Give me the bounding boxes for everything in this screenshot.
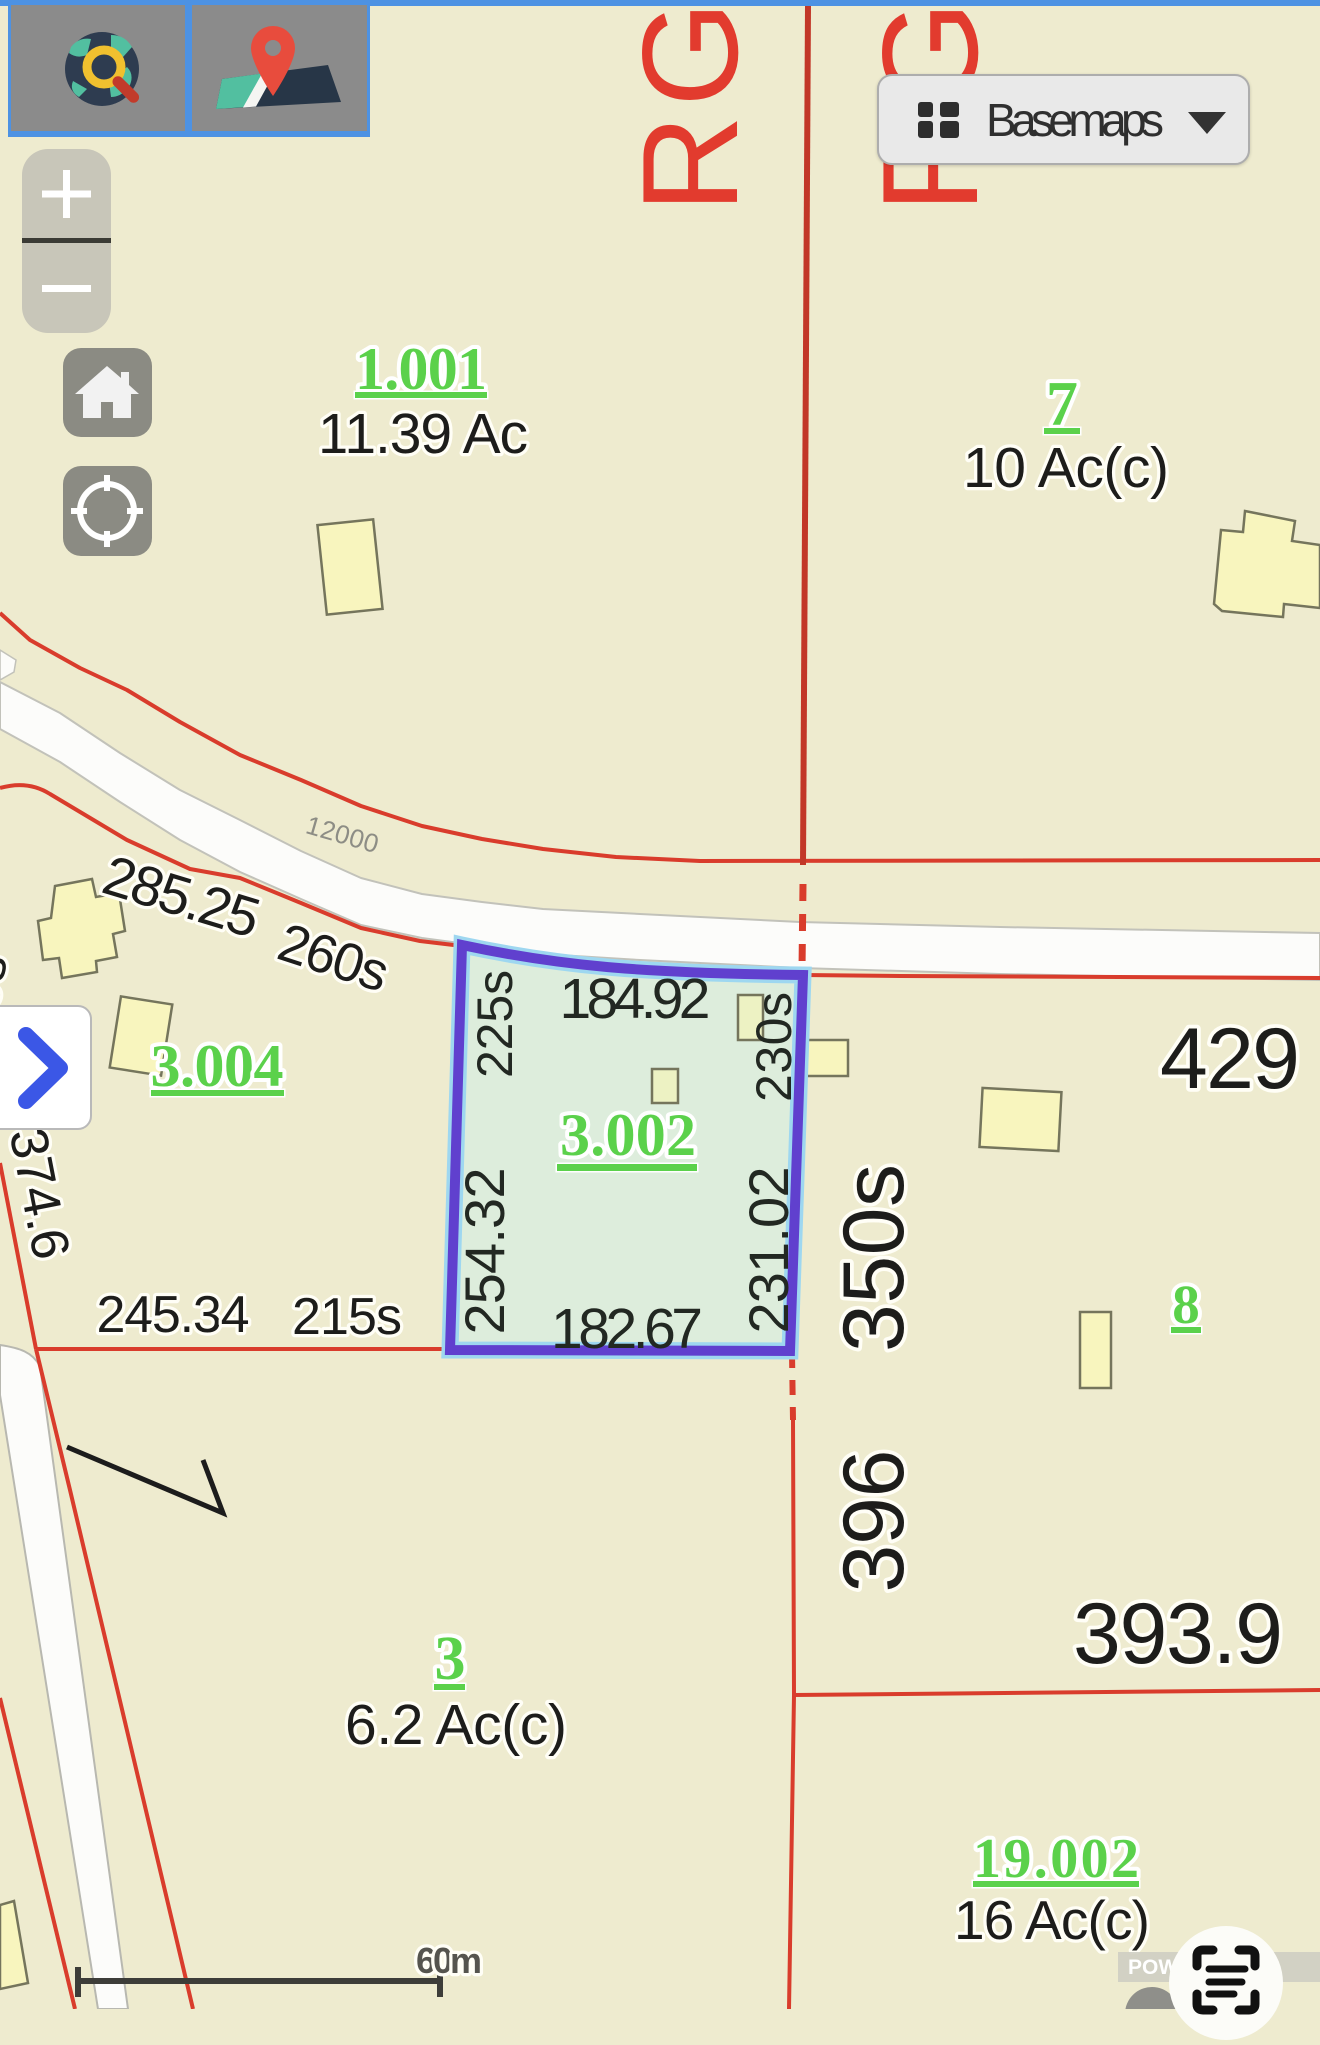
svg-text:230s: 230s bbox=[746, 992, 802, 1102]
svg-text:60m: 60m bbox=[416, 1940, 482, 1981]
svg-text:396: 396 bbox=[826, 1450, 922, 1593]
svg-text:11.39 Ac: 11.39 Ac bbox=[318, 402, 528, 466]
svg-text:Basemaps: Basemaps bbox=[986, 94, 1164, 146]
svg-text:429: 429 bbox=[1160, 1011, 1300, 1107]
svg-text:350s: 350s bbox=[826, 1164, 922, 1352]
svg-text:6.2 Ac(c): 6.2 Ac(c) bbox=[345, 1693, 567, 1757]
svg-text:393.9: 393.9 bbox=[1073, 1586, 1283, 1682]
svg-text:245.34: 245.34 bbox=[97, 1286, 250, 1344]
svg-text:184.92: 184.92 bbox=[560, 967, 711, 1031]
svg-text:254.32: 254.32 bbox=[453, 1168, 516, 1335]
svg-text:10 Ac(c): 10 Ac(c) bbox=[963, 436, 1169, 500]
svg-text:3.002: 3.002 bbox=[560, 1102, 696, 1168]
svg-text:215s: 215s bbox=[292, 1288, 402, 1346]
svg-text:182.67: 182.67 bbox=[551, 1297, 703, 1361]
svg-text:16 Ac(c): 16 Ac(c) bbox=[954, 1889, 1150, 1951]
svg-text:225s: 225s bbox=[467, 970, 523, 1078]
svg-text:231.02: 231.02 bbox=[737, 1167, 800, 1334]
svg-text:RG: RG bbox=[614, 1, 766, 213]
